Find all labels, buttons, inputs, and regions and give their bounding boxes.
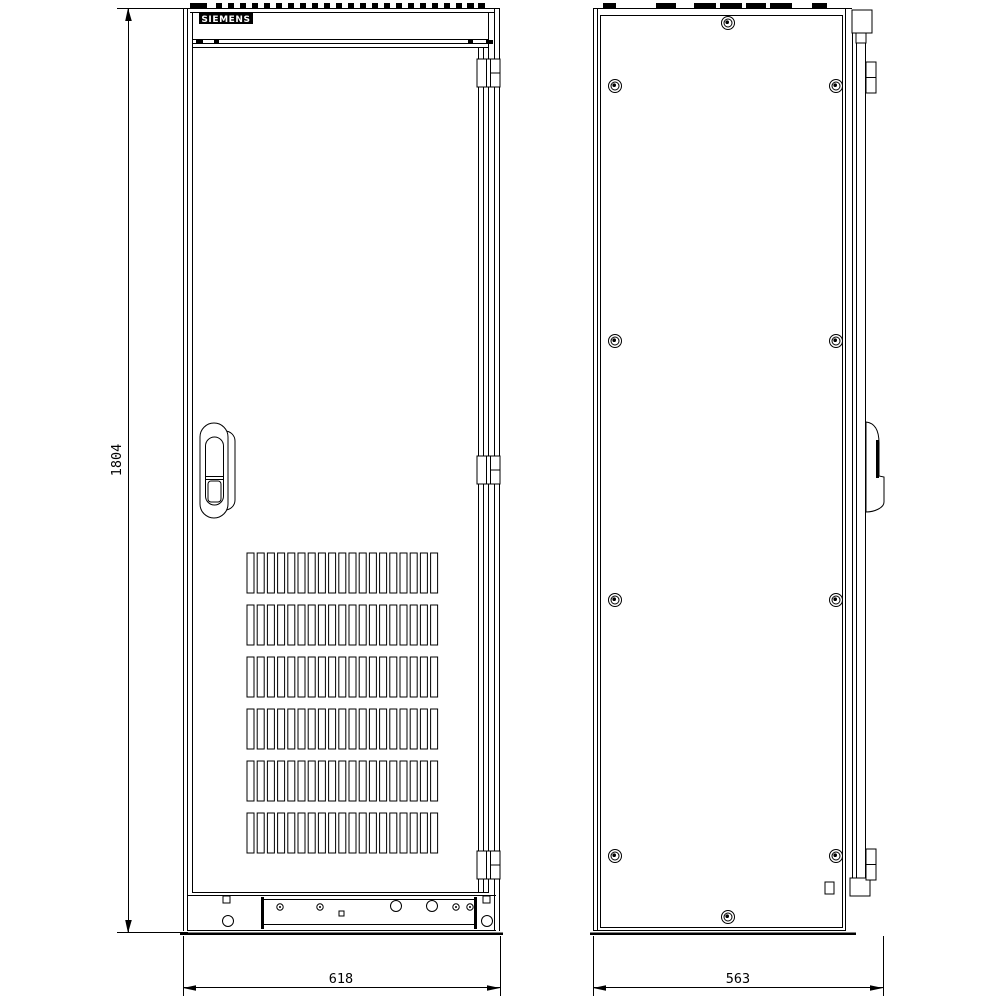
vent-slot (420, 657, 427, 697)
vent-slot (410, 709, 417, 749)
vent-slot (359, 553, 366, 593)
arrow-right-icon (870, 985, 883, 991)
top-tab (720, 3, 742, 8)
plinth-hole-dot (319, 906, 321, 908)
top-vent-dash (216, 3, 222, 8)
vent-slot (257, 813, 264, 853)
vent-slot (267, 657, 274, 697)
vent-slot (420, 605, 427, 645)
drawing-canvas: SIEMENS (0, 0, 1000, 1000)
top-vent-dash (456, 3, 462, 8)
vent-slot (390, 709, 397, 749)
vent-slot (308, 761, 315, 801)
arrow-up-icon (125, 8, 132, 21)
vent-slot (339, 657, 346, 697)
vent-slot (247, 709, 254, 749)
vent-slot (410, 813, 417, 853)
side-door-edge (853, 33, 866, 878)
door-top-cap (852, 10, 872, 33)
vent-slot (349, 709, 356, 749)
vent-slot (257, 709, 264, 749)
vent-slot (359, 605, 366, 645)
top-tab (694, 3, 716, 8)
plinth-hole-dot (279, 906, 281, 908)
vent-slot (349, 657, 356, 697)
top-vent-dash (348, 3, 354, 8)
screw-icon (830, 850, 843, 863)
vent-slot (278, 761, 285, 801)
top-vent-dash (420, 3, 426, 8)
screw-mark (833, 853, 837, 857)
vent-slot (369, 761, 376, 801)
vent-slot (369, 605, 376, 645)
vent-slot (420, 761, 427, 801)
bar-tick (486, 40, 493, 44)
vent-slot (298, 709, 305, 749)
top-tab (812, 3, 827, 8)
plinth-hole (223, 896, 230, 903)
arrow-right-icon (487, 985, 500, 991)
vent-slot (380, 813, 387, 853)
vent-slot (349, 605, 356, 645)
vent-slot (400, 605, 407, 645)
side-hinge-icon (866, 849, 876, 880)
vent-slot (318, 813, 325, 853)
vent-slot (369, 709, 376, 749)
vent-slot (278, 813, 285, 853)
vent-slot (410, 761, 417, 801)
side-panel-screws (609, 17, 843, 924)
top-vent-dash (467, 3, 474, 8)
vent-slot (298, 553, 305, 593)
screw-icon (722, 17, 735, 30)
vent-slot (349, 813, 356, 853)
vent-slot (339, 813, 346, 853)
top-tab (656, 3, 676, 8)
vent-slot (298, 657, 305, 697)
door-bottom-cap (850, 878, 870, 896)
vent-slot (288, 761, 295, 801)
screw-icon (722, 911, 735, 924)
vent-slot (329, 553, 336, 593)
side-top-tabs (603, 3, 827, 8)
vent-slot (369, 813, 376, 853)
top-tab (746, 3, 766, 8)
side-hinge-icon (866, 62, 876, 93)
top-vent-dash (312, 3, 318, 8)
vent-slot (339, 709, 346, 749)
vent-slot (257, 761, 264, 801)
vent-slot (431, 813, 438, 853)
vent-slot (278, 605, 285, 645)
bar-tick (214, 40, 219, 44)
bar-tick (196, 40, 203, 44)
vent-slot (369, 553, 376, 593)
screw-mark (612, 83, 616, 87)
siemens-logo-text: SIEMENS (201, 15, 250, 25)
vent-slot (380, 657, 387, 697)
door-hinge-icon (477, 456, 500, 484)
top-vent-dash (300, 3, 306, 8)
side-left-rails (594, 8, 601, 931)
height-dimension-label: 1804 (109, 444, 125, 477)
arrow-down-icon (125, 920, 132, 933)
vent-slot (380, 553, 387, 593)
vent-slot (410, 605, 417, 645)
side-frame (590, 8, 866, 934)
top-vent-dash (288, 3, 294, 8)
top-vent-dash (384, 3, 390, 8)
vent-slot (431, 553, 438, 593)
top-vent-dash (276, 3, 282, 8)
screw-icon (609, 594, 622, 607)
vent-slot (339, 553, 346, 593)
vent-slot (400, 761, 407, 801)
vent-slot (400, 657, 407, 697)
top-vent-dash (478, 3, 485, 8)
top-vent-dash (372, 3, 378, 8)
side-handle-profile (866, 422, 884, 512)
vent-slot (380, 709, 387, 749)
vent-slot (288, 605, 295, 645)
vent-slot (308, 709, 315, 749)
vent-slot (308, 605, 315, 645)
plinth-hole (483, 896, 490, 903)
vent-slot (288, 709, 295, 749)
vent-slot (318, 761, 325, 801)
screw-mark (612, 597, 616, 601)
vent-slot (318, 553, 325, 593)
door-top-cap-step (856, 33, 866, 43)
vent-slot (267, 553, 274, 593)
front-width-dimension-lines (183, 936, 501, 996)
vent-slot (329, 605, 336, 645)
vent-slot (267, 761, 274, 801)
vent-slot (257, 605, 264, 645)
top-vent-dash (252, 3, 258, 8)
vent-slot (247, 553, 254, 593)
side-right-rails (843, 8, 846, 931)
top-vent-dash (336, 3, 342, 8)
vent-slot (247, 605, 254, 645)
vent-slot (247, 657, 254, 697)
vent-slot (267, 605, 274, 645)
top-vent-dashes (190, 3, 485, 8)
plinth-hole (391, 901, 402, 912)
vent-slot (257, 553, 264, 593)
vent-slot (400, 709, 407, 749)
height-dimension-lines (117, 8, 188, 933)
vent-slot (278, 709, 285, 749)
vent-slot (431, 657, 438, 697)
bar-tick (468, 40, 473, 44)
vent-slot (359, 709, 366, 749)
side-horizontals (593, 9, 852, 931)
vent-slot (267, 709, 274, 749)
vent-slot (318, 605, 325, 645)
vent-slot (359, 761, 366, 801)
screw-mark (833, 597, 837, 601)
side-depth-dimension-lines (593, 936, 884, 996)
screw-mark (833, 83, 837, 87)
screw-icon (609, 80, 622, 93)
vent-slot (298, 761, 305, 801)
top-tab (603, 3, 616, 8)
vent-slot (288, 813, 295, 853)
vent-slot (390, 553, 397, 593)
screw-icon (830, 80, 843, 93)
vent-slot (318, 709, 325, 749)
door-handle (200, 423, 235, 518)
screw-mark (612, 338, 616, 342)
vent-slot (380, 605, 387, 645)
vent-slot (369, 657, 376, 697)
handle-profile-outline (866, 422, 884, 512)
screw-icon (609, 850, 622, 863)
cabinet-technical-drawing: SIEMENS (0, 0, 1000, 1000)
top-vent-dash (190, 3, 207, 8)
vent-slot (288, 553, 295, 593)
front-left-rails (184, 8, 193, 931)
vent-slot (380, 761, 387, 801)
vent-slot (288, 657, 295, 697)
vent-slot (390, 657, 397, 697)
vent-slot (329, 813, 336, 853)
vent-slot (257, 657, 264, 697)
vent-slot (431, 761, 438, 801)
screw-mark (612, 853, 616, 857)
vent-slot (359, 657, 366, 697)
plinth-hole (482, 916, 493, 927)
vent-slot (278, 657, 285, 697)
vent-slot (247, 761, 254, 801)
top-vent-dash (444, 3, 450, 8)
vent-slot (359, 813, 366, 853)
vent-slot (298, 605, 305, 645)
top-vent-dash (432, 3, 438, 8)
vent-slot (267, 813, 274, 853)
vent-slot (410, 657, 417, 697)
vent-slot (431, 709, 438, 749)
vent-slot (349, 761, 356, 801)
vent-slot (329, 761, 336, 801)
arrow-left-icon (183, 985, 196, 991)
plinth-hole-dot (455, 906, 457, 908)
vent-slot (298, 813, 305, 853)
handle-lock-recess (208, 481, 221, 502)
vent-slot (329, 709, 336, 749)
vent-slot (420, 813, 427, 853)
door-hinge-icon (477, 59, 500, 87)
top-vent-dash (396, 3, 402, 8)
dimension-arrows (125, 8, 883, 991)
vent-slot (339, 761, 346, 801)
side-depth-dimension-label: 563 (726, 971, 750, 987)
door-hinge-icon (477, 851, 500, 879)
vent-slot (390, 761, 397, 801)
vent-slot (349, 553, 356, 593)
front-view: SIEMENS (180, 3, 503, 934)
vent-slot (390, 813, 397, 853)
vent-slot (308, 813, 315, 853)
side-view (590, 3, 884, 934)
vent-slot (339, 605, 346, 645)
top-vent-dash (408, 3, 414, 8)
top-vent-dash (264, 3, 270, 8)
plinth-hole (223, 916, 234, 927)
vent-slot (278, 553, 285, 593)
top-vent-dash (228, 3, 234, 8)
vent-slot (420, 709, 427, 749)
top-vent-dash (240, 3, 246, 8)
vent-slot (308, 657, 315, 697)
arrow-left-icon (593, 985, 606, 991)
vent-slot (247, 813, 254, 853)
front-width-dimension-label: 618 (329, 971, 353, 987)
ventilation-grid (247, 553, 438, 853)
screw-mark (725, 914, 729, 918)
screw-icon (830, 335, 843, 348)
vent-slot (390, 605, 397, 645)
vent-slot (400, 813, 407, 853)
door-bottom-tab (825, 882, 834, 894)
screw-mark (833, 338, 837, 342)
vent-slot (329, 657, 336, 697)
vent-slot (400, 553, 407, 593)
vent-slot (431, 605, 438, 645)
vent-slot (420, 553, 427, 593)
screw-icon (830, 594, 843, 607)
screw-mark (725, 20, 729, 24)
top-tab (770, 3, 792, 8)
plinth-hole (427, 901, 438, 912)
plinth-hole (339, 911, 344, 916)
vent-slot (410, 553, 417, 593)
vent-slot (308, 553, 315, 593)
plinth-hole-dot (469, 906, 471, 908)
top-vent-dash (324, 3, 330, 8)
screw-icon (609, 335, 622, 348)
vent-slot (318, 657, 325, 697)
top-vent-dash (360, 3, 366, 8)
